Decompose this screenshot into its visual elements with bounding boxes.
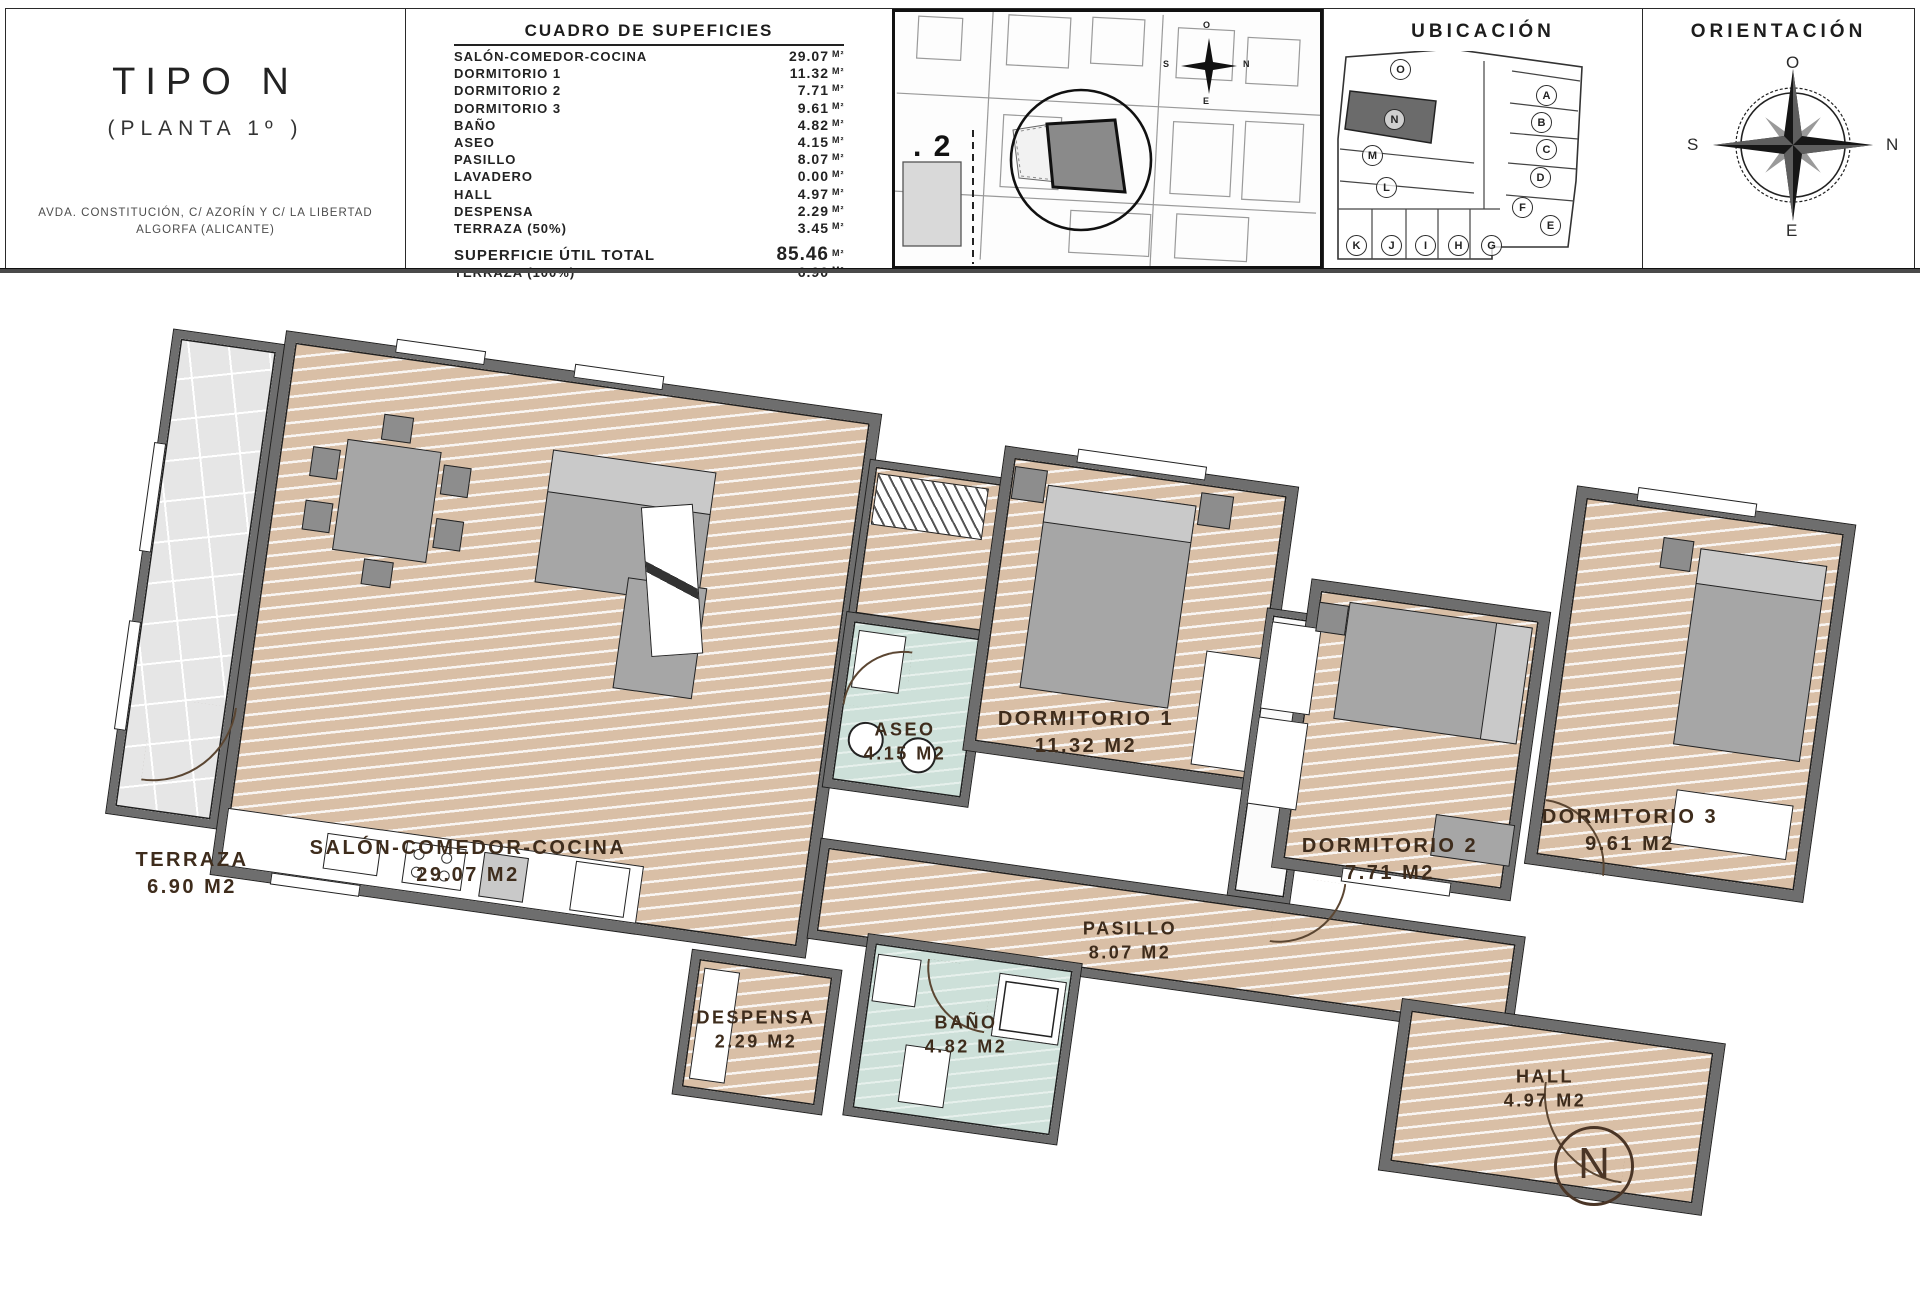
dorm1-nightstand: [1011, 466, 1048, 503]
areas-table: SALÓN-COMEDOR-COCINA29.07M² DORMITORIO 1…: [454, 49, 854, 283]
ubicacion-panel: UBICACIÓN O N M L K J I H G A B C: [1323, 9, 1642, 269]
area-row-value: 4.97: [765, 187, 829, 202]
area-row: DORMITORIO 39.61M²: [454, 101, 854, 118]
kitchen-island: [641, 504, 703, 657]
area-row-label: TERRAZA (50%): [454, 221, 765, 236]
label-dormitorio-2: DORMITORIO 2 7.71 M2: [1302, 833, 1478, 887]
area-row-value: 3.45: [765, 221, 829, 236]
area-row: PASILLO8.07M²: [454, 152, 854, 169]
label-terraza: TERRAZA 6.90 M2: [135, 847, 248, 901]
area-row-unit: M²: [832, 167, 854, 182]
unit-n: N: [1384, 109, 1405, 130]
room-area: 8.07 M2: [1083, 941, 1177, 965]
orientacion-panel: ORIENTACIÓN O N E S: [1642, 9, 1914, 269]
area-row: ASEO4.15M²: [454, 135, 854, 152]
area-row-unit: M²: [832, 47, 854, 62]
dorm1-nightstand: [1197, 492, 1234, 529]
area-row-unit: M²: [832, 185, 854, 200]
room-area: 11.32 M2: [998, 733, 1174, 760]
room-area: 29.07 M2: [310, 862, 627, 889]
dining-table: [332, 439, 442, 563]
area-row: DESPENSA2.29M²: [454, 204, 854, 221]
room-area: 6.90 M2: [135, 874, 248, 901]
room-name: SALÓN-COMEDOR-COCINA: [310, 835, 627, 862]
address-line1: AVDA. CONSTITUCIÓN, C/ AZORÍN Y C/ LA LI…: [6, 205, 405, 222]
area-row: BAÑO4.82M²: [454, 118, 854, 135]
siteplan-compass-right: N: [1243, 59, 1250, 69]
area-row-value: 0.00: [765, 169, 829, 184]
area-row-value: 7.71: [765, 83, 829, 98]
header-divider: [0, 268, 1920, 273]
dining-chair: [361, 558, 394, 588]
siteplan-compass-top: O: [1203, 20, 1210, 30]
unit-m: M: [1362, 145, 1383, 166]
unit-l: L: [1376, 177, 1397, 198]
address-line2: ALGORFA (ALICANTE): [6, 222, 405, 239]
unit-j: J: [1381, 235, 1402, 256]
area-row-value: 29.07: [765, 49, 829, 64]
compass-label-left: S: [1687, 135, 1698, 155]
area-row: HALL4.97M²: [454, 187, 854, 204]
room-area: 4.15 M2: [864, 742, 947, 766]
area-row-label: HALL: [454, 187, 765, 202]
unit-c: C: [1536, 139, 1557, 160]
page-title: TIPO N: [6, 61, 405, 104]
label-salon: SALÓN-COMEDOR-COCINA 29.07 M2: [310, 835, 627, 889]
header-band: TIPO N (PLANTA 1º ) AVDA. CONSTITUCIÓN, …: [5, 8, 1915, 269]
siteplan-compass-bottom: E: [1203, 96, 1209, 106]
areas-table-title: CUADRO DE SUPEFICIES: [454, 21, 844, 46]
area-row-label: BAÑO: [454, 118, 765, 133]
room-name: BAÑO: [925, 1011, 1008, 1035]
room-name: DORMITORIO 3: [1542, 804, 1718, 831]
room-area: 4.97 M2: [1504, 1089, 1587, 1113]
area-row-unit: M²: [832, 99, 854, 114]
ubicacion-title: UBICACIÓN: [1324, 21, 1642, 43]
area-row-value: 4.15: [765, 135, 829, 150]
area-row-label: LAVADERO: [454, 169, 765, 184]
room-name: PASILLO: [1083, 917, 1177, 941]
title-panel: TIPO N (PLANTA 1º ) AVDA. CONSTITUCIÓN, …: [6, 9, 405, 269]
area-row: SALÓN-COMEDOR-COCINA29.07M²: [454, 49, 854, 66]
area-row-label: DORMITORIO 1: [454, 66, 765, 81]
dining-chair: [381, 414, 414, 444]
label-hall: HALL 4.97 M2: [1504, 1065, 1587, 1114]
area-row-unit: M²: [832, 81, 854, 96]
unit-d: D: [1530, 167, 1551, 188]
page-subtitle: (PLANTA 1º ): [6, 117, 405, 141]
area-row-label: DESPENSA: [454, 204, 765, 219]
area-row-value: 9.61: [765, 101, 829, 116]
room-name: HALL: [1504, 1065, 1587, 1089]
area-row-unit: M²: [832, 219, 854, 234]
label-dormitorio-3: DORMITORIO 3 9.61 M2: [1542, 804, 1718, 858]
compass-label-top: O: [1786, 53, 1799, 73]
room-name: TERRAZA: [135, 847, 248, 874]
dining-chair: [432, 518, 464, 552]
siteplan-block-label: . 2: [913, 130, 952, 164]
area-row-unit: M²: [832, 202, 854, 217]
area-row-unit: M²: [832, 116, 854, 131]
floorplan-sheet: { "header": { "title": "TIPO N", "subtit…: [0, 0, 1920, 1280]
unit-a: A: [1536, 85, 1557, 106]
unit-o: O: [1390, 59, 1411, 80]
room-name: DORMITORIO 2: [1302, 833, 1478, 860]
room-name: DESPENSA: [696, 1006, 815, 1030]
area-row: DORMITORIO 111.32M²: [454, 66, 854, 83]
area-row-unit: M²: [832, 150, 854, 165]
area-row-label: ASEO: [454, 135, 765, 150]
area-row-unit: M²: [832, 64, 854, 79]
room-area: 2.29 M2: [696, 1030, 815, 1054]
area-row-value: 4.82: [765, 118, 829, 133]
unit-e: E: [1540, 215, 1561, 236]
area-total-value: 85.46: [765, 247, 829, 262]
siteplan-map: [895, 12, 1320, 266]
label-aseo: ASEO 4.15 M2: [864, 718, 947, 767]
entrance-marker: N: [1554, 1126, 1634, 1206]
area-row-unit: M²: [832, 246, 854, 261]
label-dormitorio-1: DORMITORIO 1 11.32 M2: [998, 706, 1174, 760]
dorm3-nightstand: [1659, 537, 1694, 572]
area-row-value: 2.29: [765, 204, 829, 219]
areas-table-panel: CUADRO DE SUPEFICIES SALÓN-COMEDOR-COCIN…: [405, 9, 892, 269]
unit-h: H: [1448, 235, 1469, 256]
siteplan-compass-left: S: [1163, 59, 1169, 69]
area-row: DORMITORIO 27.71M²: [454, 83, 854, 100]
label-despensa: DESPENSA 2.29 M2: [696, 1006, 815, 1055]
area-row-label: DORMITORIO 2: [454, 83, 765, 98]
room-name: DORMITORIO 1: [998, 706, 1174, 733]
dining-chair: [440, 465, 472, 499]
room-area: 4.82 M2: [925, 1035, 1008, 1059]
label-bano: BAÑO 4.82 M2: [925, 1011, 1008, 1060]
area-row-label: PASILLO: [454, 152, 765, 167]
bano-sink: [871, 954, 921, 1008]
room-area: 9.61 M2: [1542, 831, 1718, 858]
label-pasillo: PASILLO 8.07 M2: [1083, 917, 1177, 966]
compass-label-bottom: E: [1786, 221, 1797, 241]
compass-label-right: N: [1886, 135, 1898, 155]
unit-g: G: [1481, 235, 1502, 256]
area-row-label: DORMITORIO 3: [454, 101, 765, 116]
area-row: TERRAZA (50%)3.45M²: [454, 221, 854, 238]
unit-f: F: [1512, 197, 1533, 218]
unit-k: K: [1346, 235, 1367, 256]
dorm2-nightstand: [1315, 602, 1349, 636]
area-row-value: 8.07: [765, 152, 829, 167]
unit-b: B: [1531, 112, 1552, 133]
siteplan-panel: . 2 O N E S: [892, 9, 1323, 269]
area-row-value: 11.32: [765, 66, 829, 81]
room-area: 7.71 M2: [1302, 860, 1478, 887]
dining-chair: [309, 446, 341, 480]
room-aseo: [823, 612, 992, 807]
compass-rose-icon: [1643, 29, 1915, 269]
unit-i: I: [1415, 235, 1436, 256]
area-total-row: SUPERFICIE ÚTIL TOTAL85.46M²: [454, 247, 854, 265]
address-block: AVDA. CONSTITUCIÓN, C/ AZORÍN Y C/ LA LI…: [6, 205, 405, 239]
area-total-label: SUPERFICIE ÚTIL TOTAL: [454, 248, 765, 263]
area-row-label: SALÓN-COMEDOR-COCINA: [454, 49, 765, 64]
room-name: ASEO: [864, 718, 947, 742]
dining-chair: [302, 500, 334, 534]
area-row: LAVADERO0.00M²: [454, 169, 854, 186]
area-row-unit: M²: [832, 133, 854, 148]
